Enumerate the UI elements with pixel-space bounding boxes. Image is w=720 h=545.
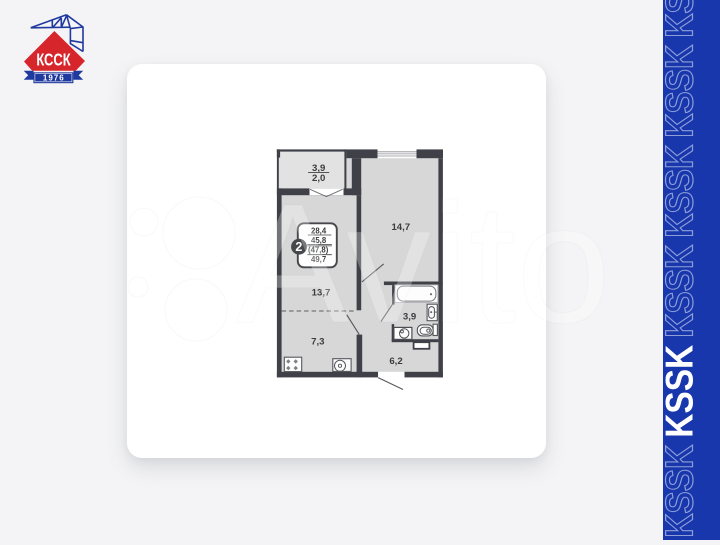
svg-text:45,8: 45,8 [311,236,327,245]
svg-text:KSSK: KSSK [663,345,702,438]
svg-text:KSSK: KSSK [663,145,702,238]
svg-text:14,7: 14,7 [391,222,410,233]
svg-text:2: 2 [295,240,302,254]
svg-text:28,4: 28,4 [311,226,327,235]
svg-text:49,7: 49,7 [311,255,326,264]
svg-text:13,7: 13,7 [312,288,331,299]
svg-text:КССК: КССК [36,51,71,71]
svg-text:KSSK: KSSK [663,45,702,138]
svg-text:KSSK: KSSK [663,0,702,38]
svg-text:2,0: 2,0 [312,173,325,184]
svg-text:7,3: 7,3 [311,336,324,347]
svg-text:3,9: 3,9 [403,311,416,322]
svg-text:KSSK: KSSK [663,445,702,538]
svg-text:1976: 1976 [43,74,65,83]
svg-text:6,2: 6,2 [389,356,402,367]
svg-text:KSSK: KSSK [663,245,702,338]
svg-text:(47,8): (47,8) [308,246,329,255]
